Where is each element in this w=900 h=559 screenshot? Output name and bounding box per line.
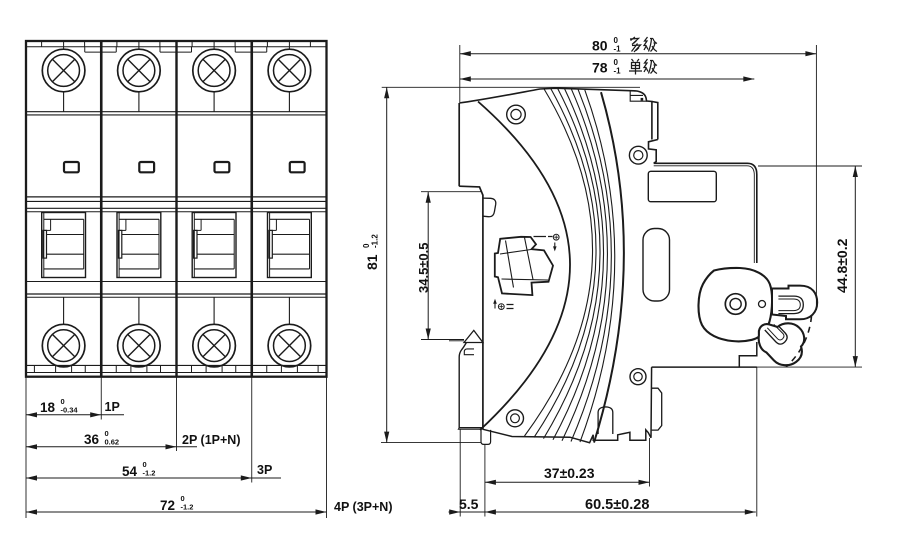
- svg-text:5.5: 5.5: [459, 496, 479, 512]
- svg-text:2P (1P+N): 2P (1P+N): [182, 433, 240, 447]
- svg-text:81: 81: [364, 254, 380, 270]
- svg-text:37±0.23: 37±0.23: [544, 465, 595, 481]
- svg-text:-1.2: -1.2: [143, 469, 156, 478]
- svg-text:3P: 3P: [257, 463, 272, 477]
- svg-text:78: 78: [592, 60, 608, 76]
- svg-text:1P: 1P: [105, 400, 120, 414]
- svg-text:60.5±0.28: 60.5±0.28: [585, 497, 649, 513]
- svg-text:-1: -1: [614, 45, 622, 54]
- svg-text:18: 18: [40, 400, 56, 415]
- svg-text:-1: -1: [614, 67, 622, 76]
- svg-text:4P (3P+N): 4P (3P+N): [334, 500, 392, 514]
- svg-text:34.5±0.5: 34.5±0.5: [416, 242, 431, 293]
- svg-text:36: 36: [84, 432, 100, 447]
- svg-text:-1.2: -1.2: [181, 503, 194, 512]
- svg-text:0.62: 0.62: [105, 438, 120, 447]
- svg-text:44.8±0.2: 44.8±0.2: [834, 238, 850, 293]
- svg-text:72: 72: [160, 498, 175, 513]
- svg-text:-1.2: -1.2: [371, 234, 380, 248]
- svg-text:-0.34: -0.34: [61, 406, 79, 415]
- svg-text:54: 54: [122, 464, 138, 479]
- svg-text:80: 80: [592, 38, 608, 54]
